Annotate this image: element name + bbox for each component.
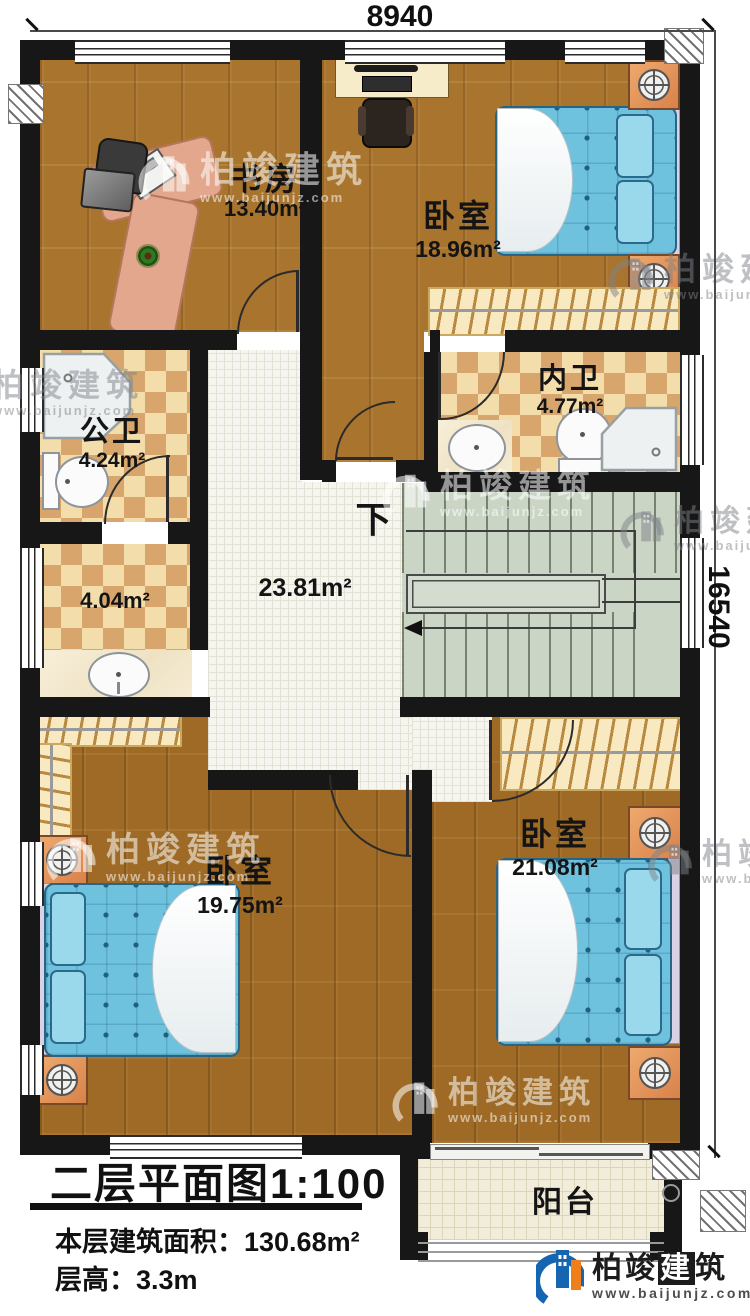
bedroom-left-wardrobe-top	[34, 713, 182, 747]
bath-inner-area: 4.77m²	[500, 396, 640, 417]
bedroom-right-label: 卧室	[475, 818, 635, 850]
balcony-drain-circle	[662, 1184, 680, 1202]
lamp-cross-v	[61, 1064, 63, 1096]
hatch-symbol-bottom-right	[700, 1190, 746, 1232]
window-top-right	[565, 40, 645, 64]
closet-area: 4.04m²	[45, 590, 185, 612]
wall-corridor-a	[322, 460, 336, 482]
wall-below-study	[40, 330, 237, 350]
bedroom-top-wardrobe	[428, 287, 680, 336]
wall-bath-inner-top-a	[430, 330, 440, 352]
bedroom-left-label: 卧室	[160, 855, 320, 887]
lamp-cross-v	[654, 1057, 656, 1089]
stair-direction-arrow	[404, 620, 422, 636]
hatch-symbol-balcony	[652, 1150, 700, 1180]
hall-area: 23.81m²	[225, 576, 385, 601]
wardrobe-rod	[50, 745, 53, 835]
plan-scale: 1:100	[270, 1160, 387, 1207]
wall-bath-inner-left	[424, 352, 438, 472]
wardrobe-rod	[36, 728, 180, 731]
wall-bath-public-bottom-b	[168, 522, 192, 544]
bedroom-top-chair	[362, 98, 412, 148]
stair-treads-upper	[402, 483, 680, 573]
wall-bath-public-bottom-a	[40, 522, 102, 544]
wardrobe-hangers	[36, 745, 70, 835]
chair-arm-left	[358, 106, 366, 136]
wall-below-stairs	[400, 697, 682, 717]
plan-title-text: 二层平面图	[50, 1160, 270, 1207]
hall-floor-1	[208, 350, 302, 482]
brand-logo: 柏竣建筑 www.baijunjz.com	[536, 1244, 750, 1308]
stair-down-label: 下	[345, 502, 405, 538]
bedroom-right-nightstand-2	[628, 1046, 682, 1100]
wall-between-bedrooms	[412, 770, 432, 1143]
bedroom-right-area: 21.08m²	[475, 856, 635, 879]
lamp-cross-v	[654, 817, 656, 849]
dimension-right-label: 16540	[701, 537, 735, 677]
balcony-sliding-door	[430, 1144, 650, 1160]
watermark-url: www.baijunjz.com	[702, 871, 750, 886]
sliding-panel-1	[435, 1147, 539, 1150]
sink-faucet	[117, 682, 120, 694]
floor-area-label: 本层建筑面积：	[55, 1227, 244, 1257]
bath-inner-label: 内卫	[500, 365, 640, 394]
bedroom-left-area: 19.75m²	[160, 894, 320, 917]
brand-logo-icon	[536, 1244, 584, 1308]
brand-name-b: 建	[658, 1252, 695, 1285]
study-label: 书房	[185, 163, 345, 195]
study-monitor	[80, 167, 136, 212]
desk-equipment-bar	[354, 65, 418, 72]
lamp-cross-v	[61, 844, 63, 876]
chair-arm-right	[406, 106, 414, 136]
hatch-symbol-top-left	[8, 84, 44, 124]
floor-height-label: 层高：	[55, 1265, 136, 1295]
bedroom-top-pillow-1	[616, 114, 654, 178]
stair-rail-line-2	[602, 601, 680, 603]
bath-inner-sink	[448, 424, 506, 472]
toilet-dot	[580, 432, 585, 437]
window-top-study	[75, 40, 230, 64]
stair-rail-line-1	[602, 578, 680, 580]
watermark-brand: 柏竣建筑	[702, 838, 750, 871]
wall-hall-left	[190, 350, 208, 650]
window-left-bedroom-2	[20, 1045, 44, 1095]
closet-sink	[88, 652, 150, 698]
brand-name-c: 筑	[695, 1252, 728, 1285]
title-underline	[30, 1203, 362, 1210]
brand-url: www.baijunjz.com	[592, 1285, 750, 1301]
plan-title: 二层平面图1:100	[50, 1150, 387, 1211]
bath-public-area: 4.24m²	[42, 450, 182, 471]
wardrobe-rod	[430, 309, 678, 312]
study-area: 13.40m²	[185, 198, 345, 220]
sink-drain	[116, 672, 121, 677]
bedroom-right-pillow-2	[624, 954, 662, 1036]
floor-area-value: 130.68m²	[244, 1227, 360, 1257]
wall-below-vanity	[40, 697, 210, 717]
sink-drain	[474, 445, 479, 450]
balcony-label: 阳台	[495, 1188, 635, 1218]
floor-height-line: 层高：3.3m	[55, 1258, 198, 1297]
window-top-bedroom	[345, 40, 505, 64]
bedroom-right-nightstand-1	[628, 806, 682, 860]
floor-height-value: 3.3m	[136, 1265, 198, 1295]
desk-equipment-keyboard	[362, 76, 412, 92]
window-right-bath	[680, 355, 704, 465]
bedroom-top-nightstand-1	[628, 60, 680, 110]
stair-walkline-bottom	[420, 627, 636, 629]
dimension-top-line	[30, 30, 714, 32]
bath-public-label: 公卫	[42, 418, 182, 447]
hatch-symbol-top-right	[664, 28, 704, 64]
bedroom-top-desk	[335, 58, 449, 98]
wall-corridor-b	[396, 460, 430, 482]
brand-name: 柏竣建筑	[592, 1252, 750, 1285]
lamp-cross-v	[653, 69, 655, 101]
window-left-closet	[20, 548, 44, 668]
brand-name-a: 柏竣	[592, 1252, 658, 1285]
bedroom-left-pillow-1	[50, 892, 86, 966]
stair-walkline-right	[634, 530, 636, 629]
window-left-bedroom-1	[20, 842, 44, 906]
bedroom-left-pillow-2	[50, 970, 86, 1044]
bedroom-top-pillow-2	[616, 180, 654, 244]
plant	[138, 246, 158, 266]
toilet-dot	[65, 479, 70, 484]
floorplan-page: { "dimensions": { "top_width": "8940", "…	[0, 0, 750, 1316]
dimension-top-label: 8940	[330, 0, 470, 34]
window-left-bath	[20, 368, 44, 432]
stair-handrail	[406, 574, 606, 614]
stair-walkline-top	[406, 530, 636, 532]
bedroom-right-pillow-1	[624, 868, 662, 950]
wall-bath-inner-bottom	[424, 472, 680, 492]
wall-study-bedroom	[300, 58, 322, 480]
sliding-panel-2	[539, 1153, 643, 1156]
bedroom-top-label: 卧室	[378, 200, 538, 232]
bedroom-top-area: 18.96m²	[378, 238, 538, 261]
wall-bath-inner-top-b	[505, 330, 680, 352]
floor-area-line: 本层建筑面积：130.68m²	[55, 1220, 360, 1259]
stair-treads-lower	[402, 612, 637, 697]
